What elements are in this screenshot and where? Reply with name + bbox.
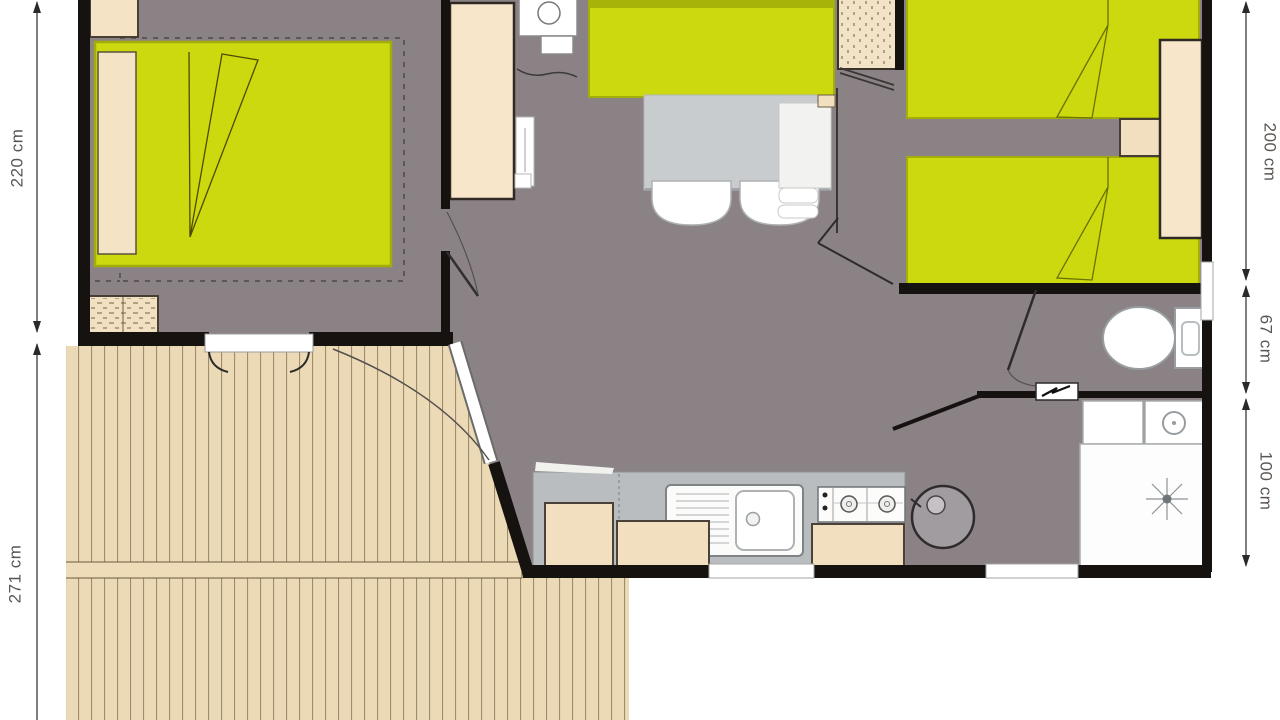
wall-bedroom1-right-upper	[441, 0, 450, 209]
wall-bottom-2	[814, 565, 986, 578]
wall-right-lower	[1202, 319, 1212, 572]
chair-left	[652, 181, 731, 225]
dimension-label-200: 200 cm	[1262, 123, 1279, 182]
window-kitchen	[709, 564, 814, 578]
sofa	[589, 0, 834, 97]
sink-icon	[1145, 401, 1205, 444]
wall-bedroom1-right-lower	[441, 251, 450, 346]
toilet-icon	[1103, 307, 1204, 369]
wall-bottom-1	[523, 565, 709, 578]
window-bathroom	[986, 564, 1078, 578]
headboard-shelf	[1160, 40, 1202, 238]
deck-edge-beam	[62, 562, 522, 578]
twin-bed-bottom	[907, 157, 1199, 286]
wardrobe-living	[450, 3, 514, 199]
shower-tray	[1080, 444, 1205, 567]
sink-basin	[736, 491, 794, 550]
cabinet-left	[545, 503, 613, 567]
sofa-arm-block	[818, 95, 835, 107]
nightstand	[1120, 119, 1163, 156]
wardrobe-top-left	[90, 0, 138, 37]
floor-plan-svg	[0, 0, 1280, 720]
wall-left	[78, 0, 90, 346]
sink-drain	[747, 513, 760, 526]
shower-head-dot	[1163, 495, 1172, 504]
wall-bedroom1-bottom-left	[78, 332, 209, 346]
wall-wc-bottom	[977, 391, 1207, 398]
bed-pillow	[98, 52, 136, 254]
dim-arrow-67	[1242, 285, 1250, 394]
cabinet-center	[617, 521, 709, 570]
wall-right-upper	[1202, 0, 1212, 264]
dim-arrow-200	[1242, 1, 1250, 281]
water-heater-icon	[911, 486, 974, 548]
hob-icon	[818, 487, 905, 522]
wall-bedroom2-left-stub	[895, 0, 904, 70]
dimension-label-271: 271 cm	[7, 545, 24, 604]
hatched-storage-unit	[838, 0, 896, 69]
dim-arrow-220	[33, 1, 41, 333]
double-bed	[95, 42, 391, 266]
wall-bottom-3	[1078, 565, 1211, 578]
vanity-unit	[1083, 401, 1143, 444]
dimension-label-220: 220 cm	[9, 129, 26, 188]
wall-bedroom1-bottom-right	[309, 332, 453, 346]
dim-arrow-100	[1242, 398, 1250, 567]
dim-arrow-271	[33, 343, 41, 720]
twin-bed-top	[907, 0, 1199, 118]
chest-of-drawers	[88, 296, 158, 336]
window-wc	[1201, 262, 1213, 320]
dimension-label-67: 67 cm	[1258, 315, 1275, 364]
floor-plan: 220 cm 271 cm 200 cm 67 cm 100 cm	[0, 0, 1280, 720]
cabinet-right	[812, 524, 904, 570]
kitchen	[533, 462, 905, 572]
wall-bedroom2-bottom	[899, 283, 1207, 294]
wall-heater	[515, 117, 534, 188]
dimension-label-100: 100 cm	[1258, 452, 1275, 511]
electric-panel-icon	[1036, 383, 1078, 400]
